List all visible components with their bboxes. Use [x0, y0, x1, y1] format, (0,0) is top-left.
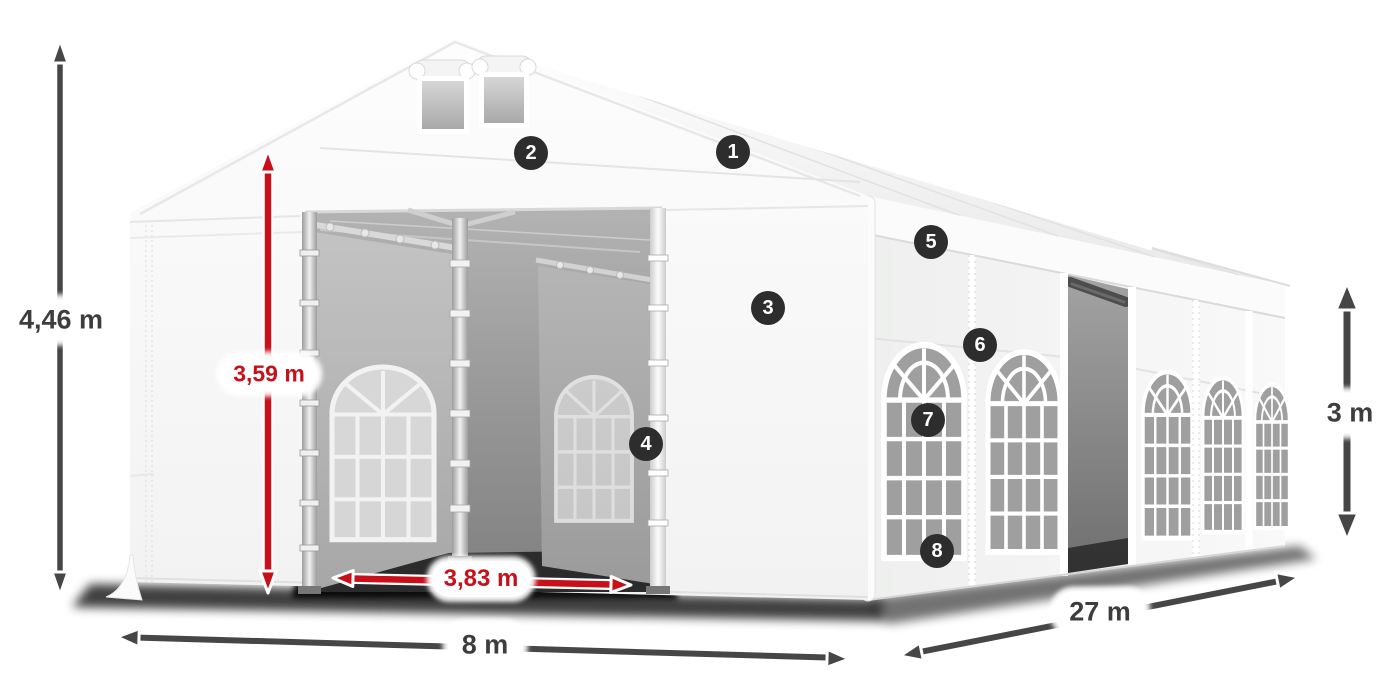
side-window-1	[884, 345, 964, 558]
side-window-5	[1255, 385, 1289, 528]
entrance-left-door	[310, 223, 456, 590]
part-badge-7: 7	[911, 403, 945, 437]
dimension-label-entrance-height: 3,59 m	[221, 357, 317, 392]
product-diagram: 1 2 3 4 5 6 7 8 4,46 m 3,59 m 3,83 m 8 m…	[0, 0, 1400, 700]
part-badge-1: 1	[716, 135, 750, 169]
dimension-label-front-width: 8 m	[448, 625, 523, 666]
dimension-label-total-height: 4,46 m	[5, 300, 117, 341]
gable-vent-right	[472, 56, 536, 128]
part-badge-3: 3	[751, 291, 785, 325]
entrance-opening	[298, 208, 670, 594]
side-window-4	[1203, 378, 1243, 532]
side-window-2	[988, 352, 1060, 552]
part-badge-6: 6	[963, 328, 997, 362]
gable-vent-left	[409, 60, 475, 134]
part-badge-8: 8	[920, 534, 954, 568]
side-doorway	[1064, 273, 1132, 576]
side-window-3	[1143, 372, 1192, 538]
entrance-right-door	[536, 260, 654, 584]
dimension-label-length: 27 m	[1055, 592, 1145, 633]
tent-illustration	[0, 0, 1400, 700]
part-badge-4: 4	[629, 427, 663, 461]
part-badge-2: 2	[514, 136, 548, 170]
part-badge-5: 5	[914, 225, 948, 259]
dimension-label-entrance-width: 3,83 m	[432, 561, 531, 597]
dimension-label-side-height: 3 m	[1313, 393, 1388, 434]
